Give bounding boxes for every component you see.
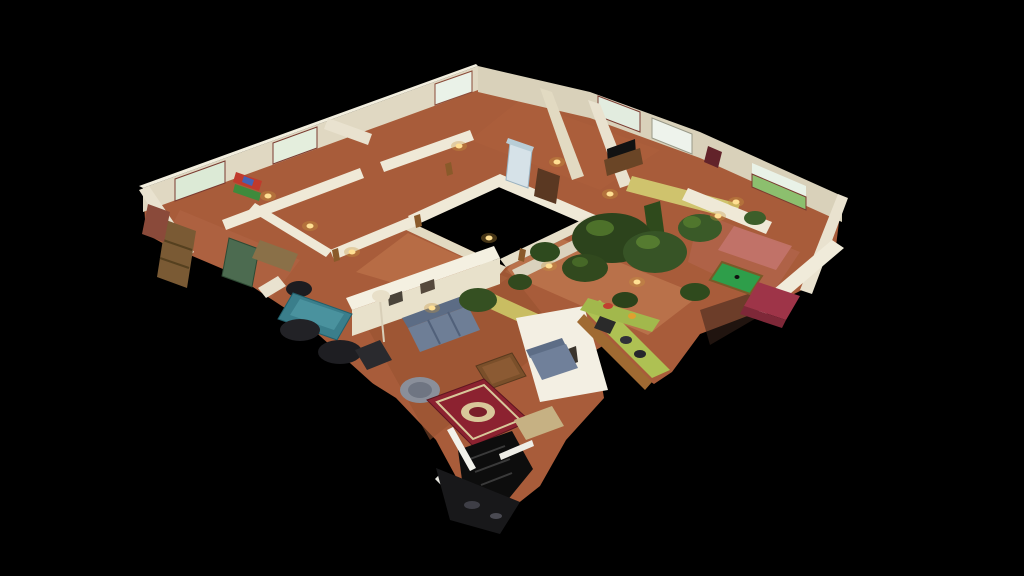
ceiling-light xyxy=(456,144,463,149)
ceiling-light xyxy=(429,306,436,311)
kitchen-shape xyxy=(603,303,613,309)
office-chair xyxy=(286,281,312,297)
ceiling-light xyxy=(554,160,561,165)
living-room-shape xyxy=(408,382,432,398)
plant xyxy=(744,211,766,225)
living-room-shape xyxy=(469,407,487,417)
ceiling-light xyxy=(307,224,314,229)
kitchen-shape xyxy=(628,313,636,319)
houseplants-shape xyxy=(572,257,588,267)
ceiling-light xyxy=(546,264,553,269)
office-area-shape xyxy=(318,340,362,364)
ceiling-light xyxy=(715,214,722,219)
office-area-shape xyxy=(280,319,320,341)
plant xyxy=(530,242,560,262)
pool-ball xyxy=(735,275,740,279)
plant xyxy=(459,288,497,312)
kitchen-shape xyxy=(634,350,646,358)
ceiling-light xyxy=(486,236,493,241)
houseplants-shape xyxy=(636,235,660,249)
stairwell-shape xyxy=(490,513,502,519)
plant xyxy=(680,283,710,301)
ceiling-light xyxy=(634,280,641,285)
ceiling-light xyxy=(607,192,614,197)
ceiling-light xyxy=(265,194,272,199)
living-room-shape xyxy=(372,290,390,302)
houseplants-shape xyxy=(683,216,701,228)
kitchen-shape xyxy=(620,336,632,344)
plant xyxy=(612,292,638,308)
dollhouse-3d-view[interactable] xyxy=(0,0,1024,576)
ceiling-light xyxy=(349,250,356,255)
stairwell-shape xyxy=(464,501,480,509)
ceiling-light xyxy=(733,200,740,205)
houseplants-shape xyxy=(586,220,614,236)
house-3d-model xyxy=(0,0,1024,576)
plant xyxy=(508,274,532,290)
